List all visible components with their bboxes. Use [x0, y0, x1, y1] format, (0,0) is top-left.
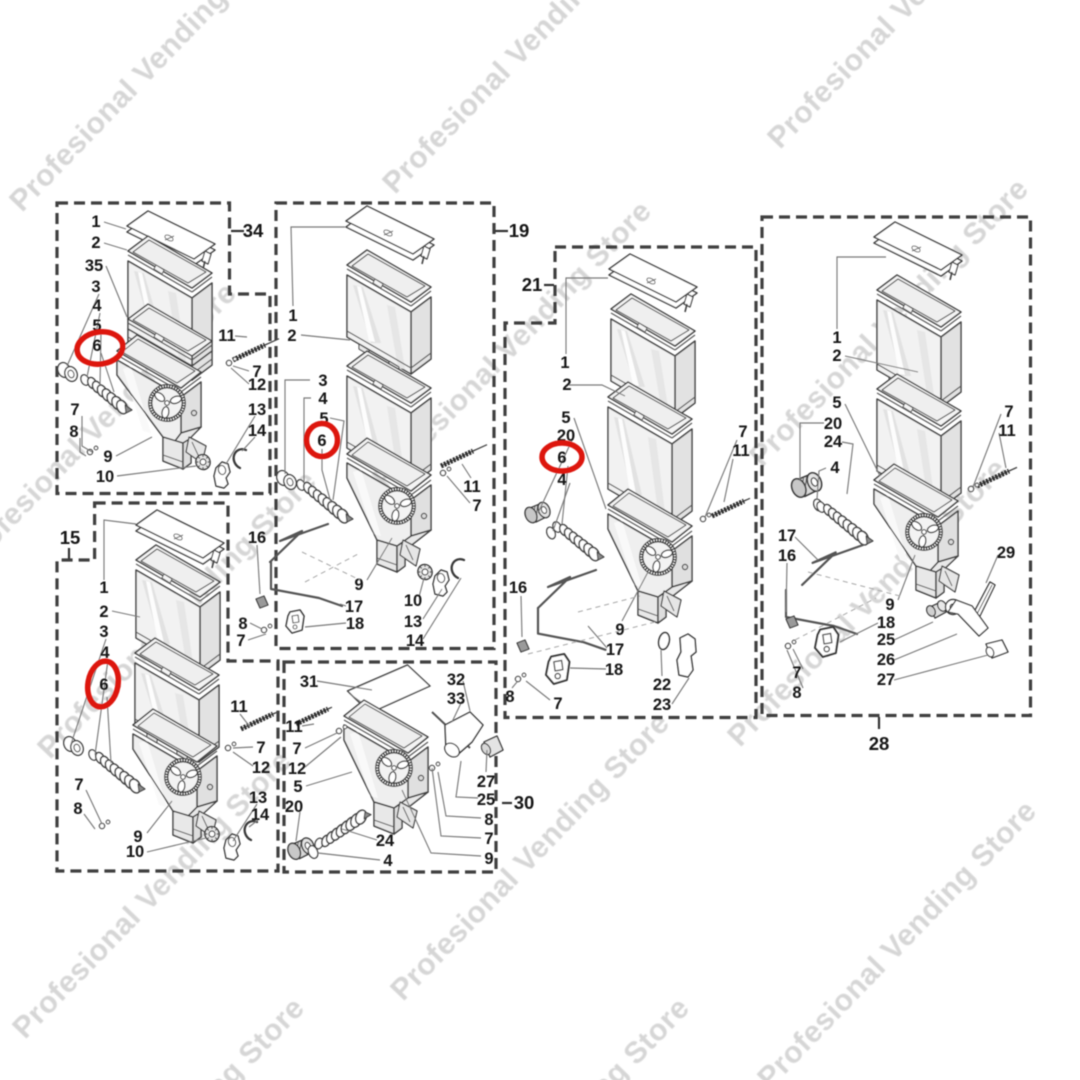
- svg-text:7: 7: [792, 664, 801, 682]
- svg-text:1: 1: [288, 307, 297, 325]
- svg-text:7: 7: [738, 423, 747, 441]
- svg-text:9: 9: [103, 448, 112, 466]
- svg-text:11: 11: [998, 422, 1015, 440]
- svg-text:2: 2: [99, 603, 108, 621]
- svg-text:34: 34: [243, 220, 264, 241]
- svg-text:2: 2: [832, 347, 841, 365]
- svg-text:8: 8: [238, 615, 247, 633]
- svg-text:5: 5: [293, 778, 302, 796]
- svg-text:1: 1: [560, 354, 569, 372]
- svg-text:25: 25: [477, 791, 495, 809]
- svg-text:4: 4: [318, 390, 328, 408]
- svg-text:11: 11: [230, 698, 247, 716]
- svg-text:28: 28: [869, 733, 890, 754]
- svg-text:1: 1: [91, 213, 100, 231]
- svg-text:3: 3: [99, 623, 108, 641]
- svg-text:12: 12: [248, 376, 266, 394]
- svg-text:11: 11: [285, 718, 302, 736]
- svg-text:14: 14: [406, 632, 425, 650]
- svg-text:3: 3: [91, 278, 100, 296]
- svg-text:11: 11: [463, 478, 480, 496]
- svg-text:18: 18: [346, 615, 364, 633]
- svg-text:16: 16: [778, 547, 796, 565]
- svg-text:20: 20: [285, 798, 303, 816]
- svg-text:17: 17: [778, 527, 796, 545]
- svg-text:17: 17: [345, 598, 363, 616]
- svg-text:6: 6: [317, 432, 326, 450]
- svg-text:14: 14: [251, 806, 270, 824]
- svg-text:5: 5: [832, 394, 841, 412]
- svg-text:31: 31: [300, 673, 318, 691]
- svg-text:1: 1: [832, 329, 841, 347]
- svg-text:26: 26: [877, 651, 895, 669]
- svg-text:13: 13: [248, 401, 266, 419]
- svg-text:15: 15: [60, 527, 81, 548]
- svg-text:8: 8: [792, 684, 801, 702]
- svg-text:4: 4: [830, 459, 840, 477]
- svg-text:7: 7: [256, 739, 265, 757]
- svg-text:4: 4: [92, 297, 102, 315]
- svg-text:24: 24: [376, 832, 395, 850]
- svg-text:17: 17: [606, 641, 624, 659]
- svg-text:11: 11: [732, 442, 749, 460]
- svg-text:7: 7: [70, 401, 79, 419]
- svg-text:5: 5: [561, 409, 570, 427]
- svg-text:23: 23: [653, 696, 671, 714]
- svg-text:29: 29: [997, 544, 1015, 562]
- svg-text:3: 3: [318, 372, 327, 390]
- svg-text:7: 7: [236, 632, 245, 650]
- svg-text:8: 8: [69, 423, 78, 441]
- svg-text:7: 7: [472, 497, 481, 515]
- svg-text:22: 22: [653, 676, 671, 694]
- svg-text:13: 13: [404, 613, 422, 631]
- svg-text:35: 35: [85, 257, 103, 275]
- svg-text:13: 13: [249, 789, 267, 807]
- svg-text:1: 1: [99, 579, 108, 597]
- svg-text:6: 6: [92, 337, 101, 355]
- svg-text:10: 10: [96, 468, 114, 486]
- svg-text:6: 6: [557, 449, 566, 467]
- svg-text:10: 10: [126, 843, 144, 861]
- svg-text:2: 2: [562, 376, 571, 394]
- svg-text:32: 32: [447, 671, 465, 689]
- svg-text:18: 18: [877, 614, 895, 632]
- svg-text:21: 21: [522, 274, 543, 295]
- svg-text:19: 19: [509, 220, 530, 241]
- svg-text:11: 11: [218, 327, 235, 345]
- svg-text:4: 4: [383, 852, 393, 870]
- svg-text:25: 25: [877, 631, 895, 649]
- svg-text:30: 30: [514, 792, 535, 813]
- svg-text:8: 8: [505, 688, 514, 706]
- svg-text:27: 27: [877, 671, 895, 689]
- svg-text:9: 9: [885, 596, 894, 614]
- svg-text:9: 9: [354, 576, 363, 594]
- svg-text:14: 14: [248, 422, 267, 440]
- svg-text:8: 8: [73, 800, 82, 818]
- svg-text:24: 24: [824, 433, 843, 451]
- svg-text:7: 7: [292, 740, 301, 758]
- svg-text:2: 2: [91, 234, 100, 252]
- svg-text:18: 18: [605, 661, 623, 679]
- svg-text:7: 7: [484, 830, 493, 848]
- svg-text:8: 8: [484, 811, 493, 829]
- svg-text:7: 7: [553, 695, 562, 713]
- svg-text:2: 2: [287, 327, 296, 345]
- svg-text:27: 27: [477, 773, 495, 791]
- svg-text:33: 33: [447, 690, 465, 708]
- svg-text:16: 16: [248, 529, 266, 547]
- svg-text:7: 7: [1004, 403, 1013, 421]
- svg-text:20: 20: [824, 415, 842, 433]
- svg-text:9: 9: [615, 621, 624, 639]
- svg-text:10: 10: [404, 592, 422, 610]
- svg-text:6: 6: [99, 676, 108, 694]
- svg-text:9: 9: [484, 850, 493, 868]
- svg-text:7: 7: [74, 776, 83, 794]
- svg-text:16: 16: [509, 579, 527, 597]
- svg-text:12: 12: [288, 760, 306, 778]
- svg-text:12: 12: [252, 759, 270, 777]
